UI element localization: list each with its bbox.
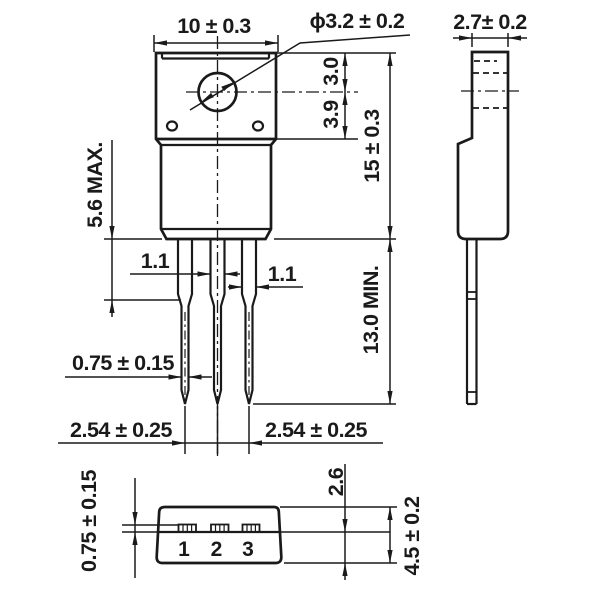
dim-body-height: 15 ± 0.3 (360, 109, 384, 183)
arrowhead (189, 374, 202, 379)
arrowhead (132, 532, 137, 545)
arrowhead (249, 440, 262, 445)
arrowhead (387, 391, 392, 404)
arrowhead (342, 53, 347, 66)
pilot-hole-right (253, 122, 263, 131)
bottom-view: 1 2 3 0.75 ± 0.15 2.6 4.5 ± 0.2 (77, 464, 424, 580)
mechanical-drawing: 10 ± 0.3 ϕ3.2 ± 0.2 3.0 3.9 15 ± 0.3 13.… (0, 0, 600, 600)
dim-pitch-left: 2.54 ± 0.25 (70, 418, 172, 442)
arrowhead (154, 40, 167, 45)
dim-lead-width-center: 1.1 (141, 249, 170, 273)
arrowhead (459, 35, 472, 40)
dim-body-thickness: 2.7± 0.2 (453, 10, 527, 34)
arrowhead (109, 226, 114, 239)
arrowhead (225, 271, 238, 276)
arrowhead (342, 79, 347, 92)
dim-hole-diameter: ϕ3.2 ± 0.2 (310, 9, 405, 33)
dim-shoulder-max: 5.6 MAX. (83, 142, 107, 228)
pin-1-label: 1 (178, 538, 190, 561)
arrowhead (387, 53, 392, 66)
dim-lead-length: 13.0 MIN. (359, 266, 383, 355)
arrowhead (201, 93, 214, 102)
arrowhead (132, 512, 137, 525)
dim-hole-from-top: 3.0 (319, 57, 343, 86)
arrowhead (387, 550, 392, 563)
package-outline-svg: 10 ± 0.3 ϕ3.2 ± 0.2 3.0 3.9 15 ± 0.3 13.… (0, 0, 600, 600)
lead-1 (178, 239, 192, 404)
arrowhead (387, 507, 392, 520)
dim-body-width: 10 ± 0.3 (177, 14, 251, 38)
pilot-hole-left (167, 122, 177, 131)
dim-lead-thickness: 0.75 ± 0.15 (77, 469, 101, 571)
arrowhead (169, 374, 182, 379)
arrowhead (342, 126, 347, 139)
arrowhead (342, 563, 347, 576)
arrowhead (387, 226, 392, 239)
dim-lead-tip-width: 0.75 ± 0.15 (72, 351, 174, 375)
arrowhead (198, 271, 211, 276)
pin-2-label: 2 (211, 538, 223, 561)
dim-body-depth: 4.5 ± 0.2 (400, 496, 424, 576)
arrowhead (229, 284, 242, 289)
arrowhead (109, 300, 114, 313)
arrowhead (342, 519, 347, 532)
arrowhead (342, 92, 347, 105)
dim-hole-to-step: 3.9 (319, 100, 343, 129)
dim-lead-width-outer: 1.1 (268, 262, 297, 286)
arrowhead (508, 35, 521, 40)
dim-lead-line-to-back: 2.6 (324, 467, 348, 496)
side-view: 2.7± 0.2 (453, 10, 527, 404)
front-view: 10 ± 0.3 ϕ3.2 ± 0.2 3.0 3.9 15 ± 0.3 13.… (58, 9, 410, 456)
dim-pitch-right: 2.54 ± 0.25 (265, 418, 367, 442)
lead-cross-sections (179, 525, 260, 533)
arrowhead (265, 40, 278, 45)
pin-3-label: 3 (242, 538, 254, 561)
arrowhead (387, 239, 392, 252)
package-side-outline (458, 52, 508, 239)
arrowhead (172, 440, 185, 445)
lead-3 (242, 239, 256, 404)
